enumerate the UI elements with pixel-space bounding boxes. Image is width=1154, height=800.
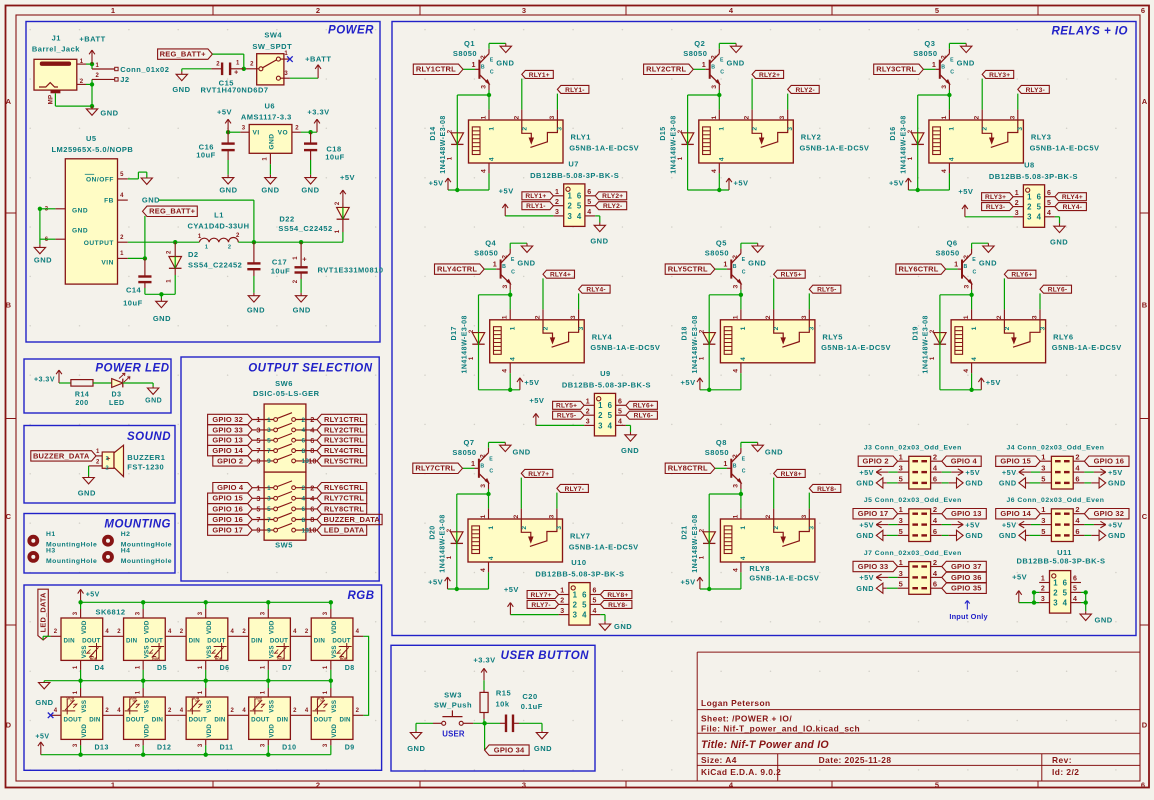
svg-text:1N4148W-E3-08: 1N4148W-E3-08 [692, 514, 699, 573]
svg-text:2: 2 [930, 329, 936, 333]
svg-text:LED_DATA: LED_DATA [324, 526, 365, 535]
svg-text:GND: GND [1108, 531, 1126, 540]
svg-text:VSS: VSS [206, 700, 213, 713]
svg-text:3: 3 [711, 85, 718, 89]
svg-text:2: 2 [293, 708, 297, 714]
svg-text:Rev:: Rev: [1052, 755, 1072, 765]
svg-text:Q8: Q8 [716, 438, 727, 447]
svg-text:C: C [6, 512, 12, 521]
svg-text:RELAYS + IO: RELAYS + IO [1051, 26, 1128, 38]
svg-text:6: 6 [587, 189, 591, 196]
svg-text:B: B [481, 64, 485, 70]
svg-text:G5NB-1A-E-DC5V: G5NB-1A-E-DC5V [749, 574, 819, 583]
svg-text:GND: GND [100, 108, 118, 117]
svg-text:GND: GND [965, 479, 983, 488]
svg-text:VSS: VSS [268, 645, 275, 658]
svg-text:4: 4 [732, 369, 739, 373]
svg-text:1: 1 [899, 505, 903, 514]
svg-text:RLY1-: RLY1- [565, 87, 584, 94]
svg-text:5: 5 [267, 438, 271, 445]
svg-text:3: 3 [560, 608, 564, 615]
svg-text:GND: GND [72, 207, 88, 214]
svg-text:J6 Conn_02x03_Odd_Even: J6 Conn_02x03_Odd_Even [1006, 497, 1104, 504]
svg-text:RLY2-: RLY2- [795, 87, 814, 94]
svg-text:RLY6+: RLY6+ [1011, 272, 1032, 279]
svg-text:3: 3 [502, 284, 509, 288]
svg-text:SW3: SW3 [444, 691, 462, 700]
svg-text:6: 6 [1075, 474, 1079, 483]
svg-text:1: 1 [293, 256, 299, 260]
svg-text:9: 9 [256, 457, 260, 466]
svg-text:GND: GND [979, 258, 997, 267]
svg-text:GPIO 35: GPIO 35 [951, 584, 982, 593]
svg-text:2: 2 [117, 629, 121, 635]
svg-text:S8050: S8050 [913, 49, 937, 58]
svg-text:DIN: DIN [339, 717, 351, 724]
svg-text:2: 2 [231, 708, 235, 714]
svg-text:RGB: RGB [215, 657, 223, 661]
svg-text:5: 5 [1073, 586, 1077, 593]
svg-text:9: 9 [267, 458, 271, 465]
svg-text:B: B [502, 264, 506, 270]
svg-text:GND: GND [34, 256, 52, 265]
svg-text:RLY6+: RLY6+ [633, 403, 654, 410]
svg-text:3: 3 [323, 611, 329, 615]
svg-text:E: E [490, 57, 494, 63]
svg-text:4: 4 [711, 169, 718, 173]
svg-text:1: 1 [236, 60, 240, 66]
svg-text:3: 3 [809, 525, 816, 529]
svg-text:DB12BB-5.08-3P-BK-S: DB12BB-5.08-3P-BK-S [530, 171, 619, 180]
svg-text:C: C [973, 269, 977, 275]
svg-text:Q5: Q5 [716, 239, 727, 248]
svg-text:3: 3 [787, 126, 794, 130]
svg-text:+5V: +5V [889, 178, 904, 187]
svg-text:RLY4-: RLY4- [1063, 204, 1082, 211]
svg-text:E: E [742, 257, 746, 263]
svg-text:4: 4 [941, 169, 948, 173]
svg-text:E: E [489, 456, 493, 462]
svg-text:10uF: 10uF [325, 152, 345, 161]
svg-text:4: 4 [587, 209, 591, 216]
svg-text:3: 3 [135, 611, 141, 615]
svg-text:2: 2 [513, 115, 520, 119]
svg-text:5: 5 [582, 600, 587, 609]
svg-text:4: 4 [971, 357, 978, 361]
svg-text:3: 3 [73, 611, 79, 615]
svg-text:6: 6 [1141, 6, 1145, 15]
svg-text:VSS: VSS [81, 700, 88, 713]
svg-text:6: 6 [933, 527, 937, 536]
svg-text:2: 2 [513, 514, 520, 518]
svg-text:GND: GND [293, 306, 311, 315]
svg-text:D18: D18 [682, 326, 689, 340]
svg-text:RLY5CTRL: RLY5CTRL [668, 265, 708, 274]
svg-text:R15: R15 [496, 689, 511, 698]
svg-text:1: 1 [323, 690, 329, 694]
svg-text:OUTPUT: OUTPUT [84, 240, 114, 247]
svg-text:RLY3+: RLY3+ [985, 194, 1006, 201]
svg-text:6: 6 [1037, 193, 1042, 202]
svg-text:GND: GND [496, 59, 514, 68]
svg-text:4: 4 [1075, 464, 1080, 473]
svg-text:4: 4 [502, 369, 509, 373]
svg-text:RGB: RGB [347, 590, 374, 602]
svg-text:RLY2+: RLY2+ [602, 193, 623, 200]
svg-text:GPIO 32: GPIO 32 [212, 415, 243, 424]
svg-text:9: 9 [267, 527, 271, 534]
svg-text:Conn_01x02: Conn_01x02 [120, 65, 169, 74]
svg-text:1: 1 [471, 459, 475, 468]
svg-text:BUZZER_DATA: BUZZER_DATA [33, 451, 90, 460]
svg-text:DB12BB-5.08-3P-BK-S: DB12BB-5.08-3P-BK-S [989, 172, 1078, 181]
svg-text:5: 5 [256, 436, 260, 445]
svg-text:5: 5 [120, 172, 124, 178]
svg-text:1: 1 [555, 189, 559, 196]
svg-text:H3: H3 [46, 547, 56, 554]
svg-text:GND: GND [957, 59, 975, 68]
svg-text:2: 2 [216, 62, 220, 68]
svg-text:+: + [302, 255, 307, 264]
svg-text:D14: D14 [430, 126, 437, 140]
svg-text:1: 1 [469, 356, 475, 360]
svg-text:4: 4 [592, 608, 596, 615]
svg-text:GND: GND [856, 531, 874, 540]
svg-text:RLY3-: RLY3- [1026, 87, 1045, 94]
svg-text:D12: D12 [157, 745, 171, 752]
svg-text:RLY5+: RLY5+ [781, 272, 802, 279]
svg-text:6: 6 [302, 506, 306, 513]
svg-text:J1: J1 [52, 34, 61, 43]
svg-text:2: 2 [166, 250, 172, 254]
svg-text:+5V: +5V [217, 107, 232, 116]
svg-text:GND: GND [999, 479, 1017, 488]
svg-text:4: 4 [963, 369, 970, 373]
svg-text:G5NB-1A-E-DC5V: G5NB-1A-E-DC5V [1030, 143, 1100, 152]
svg-text:3: 3 [45, 207, 49, 213]
svg-text:D13: D13 [95, 745, 109, 752]
svg-text:C14: C14 [126, 286, 142, 295]
svg-text:GND: GND [172, 85, 190, 94]
svg-text:4: 4 [242, 708, 246, 714]
svg-text:3: 3 [899, 464, 903, 473]
svg-text:DOUT: DOUT [64, 717, 82, 724]
svg-text:G5NB-1A-E-DC5V: G5NB-1A-E-DC5V [800, 143, 870, 152]
svg-text:RLY4CTRL: RLY4CTRL [324, 446, 364, 455]
svg-text:RLY1CTRL: RLY1CTRL [416, 65, 456, 74]
svg-text:1: 1 [740, 326, 747, 330]
svg-text:POWER LED: POWER LED [95, 362, 169, 374]
svg-text:5: 5 [1037, 203, 1042, 212]
svg-text:5: 5 [935, 6, 939, 15]
svg-text:RLY7CTRL: RLY7CTRL [415, 464, 455, 473]
svg-text:3: 3 [198, 611, 204, 615]
svg-text:5: 5 [608, 411, 613, 420]
svg-text:4: 4 [740, 357, 747, 361]
svg-text:4: 4 [582, 611, 587, 620]
svg-text:DOUT: DOUT [332, 638, 350, 645]
svg-text:2: 2 [744, 115, 751, 119]
svg-text:1: 1 [1041, 453, 1045, 462]
svg-text:+5V: +5V [1012, 573, 1027, 582]
svg-text:+5V: +5V [681, 378, 696, 387]
svg-text:5: 5 [899, 527, 903, 536]
svg-text:RLY7+: RLY7+ [531, 592, 552, 599]
svg-text:D6: D6 [220, 665, 230, 672]
svg-text:RLY3+: RLY3+ [989, 72, 1010, 79]
svg-text:RLY7CTRL: RLY7CTRL [324, 494, 364, 503]
svg-text:DOUT: DOUT [314, 717, 332, 724]
svg-text:3: 3 [570, 315, 577, 319]
svg-text:RLY4: RLY4 [592, 332, 613, 341]
svg-text:Size: A4: Size: A4 [701, 755, 737, 765]
svg-text:2: 2 [1053, 588, 1058, 597]
svg-text:GPIO 2: GPIO 2 [862, 457, 888, 466]
svg-text:1N4148W-E3-08: 1N4148W-E3-08 [901, 115, 908, 174]
svg-text:RLY7+: RLY7+ [528, 471, 549, 478]
svg-text:+5V: +5V [859, 468, 874, 477]
svg-text:D8: D8 [345, 665, 355, 672]
svg-text:VSS: VSS [81, 645, 88, 658]
svg-text:GND: GND [765, 448, 783, 457]
svg-text:2: 2 [250, 62, 254, 68]
svg-text:DOUT: DOUT [207, 638, 225, 645]
svg-text:2: 2 [305, 629, 309, 635]
svg-text:DSIC-05-LS-GER: DSIC-05-LS-GER [253, 389, 320, 398]
svg-text:2: 2 [773, 326, 780, 330]
svg-text:1: 1 [1027, 193, 1032, 202]
svg-text:10: 10 [308, 526, 317, 535]
svg-text:1: 1 [723, 459, 727, 468]
svg-text:OUTPUT SELECTION: OUTPUT SELECTION [248, 362, 372, 374]
svg-text:+5V: +5V [499, 186, 514, 195]
svg-text:B: B [733, 463, 737, 469]
svg-text:4: 4 [949, 157, 956, 161]
svg-text:1N4148W-E3-08: 1N4148W-E3-08 [670, 115, 677, 174]
svg-text:RLY2CTRL: RLY2CTRL [646, 65, 686, 74]
svg-text:0.1uF: 0.1uF [521, 702, 543, 711]
svg-text:4: 4 [1047, 210, 1051, 217]
svg-text:1: 1 [448, 156, 454, 160]
svg-text:3: 3 [284, 71, 288, 77]
svg-text:D10: D10 [282, 745, 296, 752]
svg-text:3: 3 [899, 516, 903, 525]
svg-text:7: 7 [256, 446, 260, 455]
svg-text:6: 6 [933, 474, 937, 483]
svg-text:RLY1-: RLY1- [526, 203, 545, 210]
svg-text:3: 3 [733, 484, 740, 488]
svg-text:2: 2 [933, 453, 937, 462]
svg-text:1: 1 [502, 315, 509, 319]
svg-text:1: 1 [899, 558, 903, 567]
svg-text:VO: VO [278, 129, 289, 136]
svg-text:1: 1 [205, 244, 208, 250]
svg-text:D16: D16 [890, 126, 897, 140]
svg-text:GND: GND [856, 584, 874, 593]
svg-text:3: 3 [260, 611, 266, 615]
svg-text:2: 2 [120, 235, 124, 241]
svg-text:+3.3V: +3.3V [34, 377, 55, 384]
svg-text:3: 3 [1015, 210, 1019, 217]
svg-text:2: 2 [586, 408, 590, 415]
svg-text:C: C [950, 70, 954, 76]
svg-text:6: 6 [592, 588, 596, 595]
svg-text:2: 2 [933, 505, 937, 514]
svg-text:5: 5 [267, 506, 271, 513]
svg-text:U6: U6 [265, 101, 276, 110]
svg-text:2: 2 [732, 454, 739, 458]
svg-text:RLY1+: RLY1+ [529, 72, 550, 79]
svg-text:GPIO 13: GPIO 13 [212, 436, 243, 445]
svg-text:4: 4 [180, 708, 184, 714]
svg-text:C: C [1142, 512, 1148, 521]
svg-text:3: 3 [578, 326, 585, 330]
svg-text:GPIO 33: GPIO 33 [858, 562, 889, 571]
svg-text:RLY2: RLY2 [801, 133, 821, 142]
svg-text:2: 2 [982, 126, 989, 130]
svg-text:2: 2 [1004, 326, 1011, 330]
svg-text:BUZZER1: BUZZER1 [127, 453, 165, 462]
svg-text:3: 3 [1017, 126, 1024, 130]
svg-text:DOUT: DOUT [82, 638, 100, 645]
svg-text:E: E [972, 257, 976, 263]
svg-text:1: 1 [80, 59, 84, 65]
svg-text:1: 1 [567, 192, 572, 201]
svg-text:MOUNTING: MOUNTING [104, 518, 171, 530]
svg-text:1: 1 [700, 555, 706, 559]
svg-text:2: 2 [168, 708, 172, 714]
svg-text:GND: GND [72, 227, 88, 234]
svg-text:RLY7-: RLY7- [565, 486, 584, 493]
svg-text:D19: D19 [912, 326, 919, 340]
svg-text:SS54_C22452: SS54_C22452 [188, 261, 242, 270]
svg-text:RVT1E331M0810: RVT1E331M0810 [318, 266, 384, 275]
svg-text:7: 7 [267, 517, 271, 524]
svg-text:J4 Conn_02x03_Odd_Even: J4 Conn_02x03_Odd_Even [1006, 445, 1104, 452]
svg-text:+5V: +5V [986, 378, 1001, 387]
svg-text:8: 8 [310, 446, 314, 455]
svg-text:2: 2 [678, 129, 684, 133]
svg-text:VSS: VSS [206, 645, 213, 658]
svg-text:RLY2-: RLY2- [603, 203, 622, 210]
svg-text:5: 5 [1063, 588, 1068, 597]
svg-text:C: C [490, 70, 494, 76]
svg-text:D2: D2 [188, 250, 199, 259]
svg-text:1: 1 [198, 234, 202, 240]
svg-text:2: 2 [469, 329, 475, 333]
svg-text:GPIO 4: GPIO 4 [217, 483, 244, 492]
svg-text:1: 1 [711, 115, 718, 119]
svg-text:AMS1117-3.3: AMS1117-3.3 [241, 113, 292, 122]
svg-text:Q2: Q2 [694, 39, 705, 48]
svg-text:1: 1 [166, 279, 172, 283]
svg-text:Q1: Q1 [464, 39, 475, 48]
svg-text:3: 3 [941, 85, 948, 89]
svg-text:5: 5 [935, 780, 939, 789]
svg-text:RLY8: RLY8 [749, 564, 769, 573]
svg-text:RLY8-: RLY8- [817, 486, 836, 493]
svg-text:3: 3 [1041, 464, 1045, 473]
svg-text:GND: GND [748, 258, 766, 267]
svg-text:2: 2 [573, 600, 578, 609]
svg-text:RLY8CTRL: RLY8CTRL [324, 504, 364, 513]
svg-text:3: 3 [548, 514, 555, 518]
svg-text:GND: GND [534, 744, 552, 753]
svg-text:VDD: VDD [268, 620, 275, 634]
svg-text:GND: GND [614, 622, 632, 631]
svg-text:1: 1 [263, 157, 269, 161]
svg-text:6: 6 [608, 401, 613, 410]
svg-text:DIN: DIN [277, 717, 289, 724]
svg-text:G5NB-1A-E-DC5V: G5NB-1A-E-DC5V [569, 542, 639, 551]
svg-text:RLY3: RLY3 [1031, 133, 1051, 142]
svg-text:4: 4 [719, 157, 726, 161]
svg-text:D20: D20 [429, 525, 436, 539]
svg-text:1: 1 [471, 60, 475, 69]
svg-text:10: 10 [308, 457, 317, 466]
svg-text:1: 1 [256, 483, 260, 492]
svg-text:6: 6 [1063, 578, 1068, 587]
svg-text:2: 2 [941, 55, 948, 59]
svg-text:S8050: S8050 [705, 448, 729, 457]
svg-text:1: 1 [1053, 578, 1058, 587]
svg-text:+3.3V: +3.3V [307, 107, 329, 116]
svg-text:4: 4 [310, 494, 315, 503]
svg-text:RLY6CTRL: RLY6CTRL [324, 483, 364, 492]
svg-text:U10: U10 [571, 558, 586, 567]
svg-text:C: C [511, 269, 515, 275]
svg-text:D3: D3 [112, 392, 122, 399]
svg-text:1: 1 [120, 251, 124, 257]
svg-text:USER BUTTON: USER BUTTON [501, 650, 590, 662]
svg-text:+5V: +5V [965, 520, 980, 529]
svg-text:2: 2 [242, 629, 246, 635]
svg-text:E: E [742, 456, 746, 462]
svg-text:RVT1H470ND6D7: RVT1H470ND6D7 [200, 86, 268, 95]
svg-text:RGB: RGB [66, 696, 74, 700]
svg-text:6: 6 [45, 237, 49, 243]
svg-text:3: 3 [567, 212, 572, 221]
svg-text:LED: LED [109, 400, 125, 407]
svg-text:1: 1 [702, 60, 706, 69]
svg-text:2: 2 [543, 326, 550, 330]
svg-text:D22: D22 [279, 215, 294, 224]
svg-text:3: 3 [733, 284, 740, 288]
svg-text:3: 3 [801, 514, 808, 518]
svg-text:SW_Push: SW_Push [434, 701, 472, 710]
svg-text:1: 1 [106, 456, 109, 462]
svg-text:1: 1 [941, 115, 948, 119]
svg-text:1: 1 [480, 514, 487, 518]
svg-text:D11: D11 [220, 745, 234, 752]
svg-text:2: 2 [933, 558, 937, 567]
svg-text:10uF: 10uF [271, 266, 291, 275]
svg-text:VIN: VIN [101, 259, 114, 266]
svg-text:+5V: +5V [428, 577, 443, 586]
svg-text:1: 1 [598, 401, 603, 410]
svg-text:DIN: DIN [214, 717, 226, 724]
svg-text:GND: GND [999, 531, 1017, 540]
svg-text:DOUT: DOUT [189, 717, 207, 724]
svg-text:GND: GND [1050, 237, 1068, 246]
svg-text:Barrel_Jack: Barrel_Jack [32, 44, 80, 53]
svg-text:SS54_C22452: SS54_C22452 [278, 224, 332, 233]
svg-text:3: 3 [809, 326, 816, 330]
svg-text:DIN: DIN [251, 638, 263, 645]
svg-text:RLY7: RLY7 [570, 532, 590, 541]
svg-text:3: 3 [198, 743, 204, 747]
svg-text:Date: 2025-11-28: Date: 2025-11-28 [819, 755, 892, 765]
